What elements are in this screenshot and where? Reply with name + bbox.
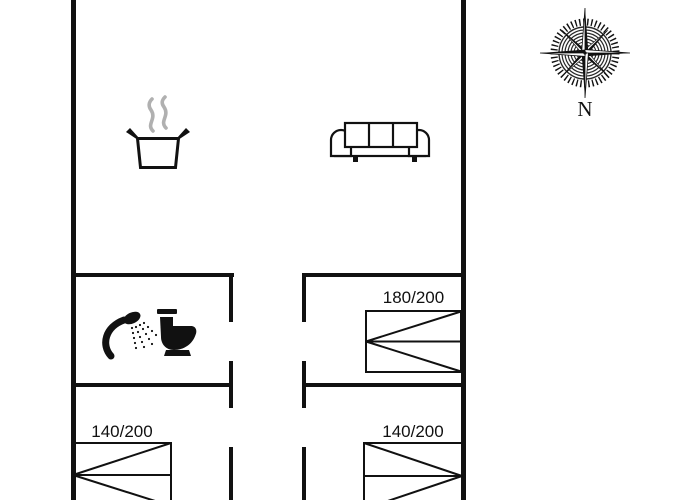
bed-size-label: 140/200 <box>363 423 463 441</box>
wall-hall-left-lower <box>229 447 233 500</box>
wall-bedroom1-top <box>302 273 466 277</box>
wall-bedroom1-bottom <box>302 383 466 387</box>
floor-plan: 180/200 140/200 140/200 <box>0 0 700 500</box>
compass-rose-icon <box>533 5 639 105</box>
pot-body <box>138 139 179 168</box>
bed-size-label: 140/200 <box>72 423 172 441</box>
hallway <box>233 277 302 500</box>
shower-icon <box>98 306 160 358</box>
wall-hall-left-upper <box>229 273 233 322</box>
wall-bathroom-bottom <box>71 383 233 387</box>
compass-north-label: N <box>563 97 607 122</box>
toilet-icon <box>153 307 199 357</box>
sofa-icon <box>328 119 432 165</box>
bed-symbol <box>363 442 463 500</box>
bed-symbol <box>365 310 462 373</box>
wall-hall-right-lower <box>302 447 306 500</box>
wall-bathroom-top <box>71 273 234 277</box>
bed-size-label: 180/200 <box>365 289 462 307</box>
cooking-pot-icon <box>120 96 196 172</box>
bed-symbol <box>72 442 172 500</box>
wall-hall-right-upper <box>302 273 306 322</box>
steam-icon <box>149 97 166 131</box>
